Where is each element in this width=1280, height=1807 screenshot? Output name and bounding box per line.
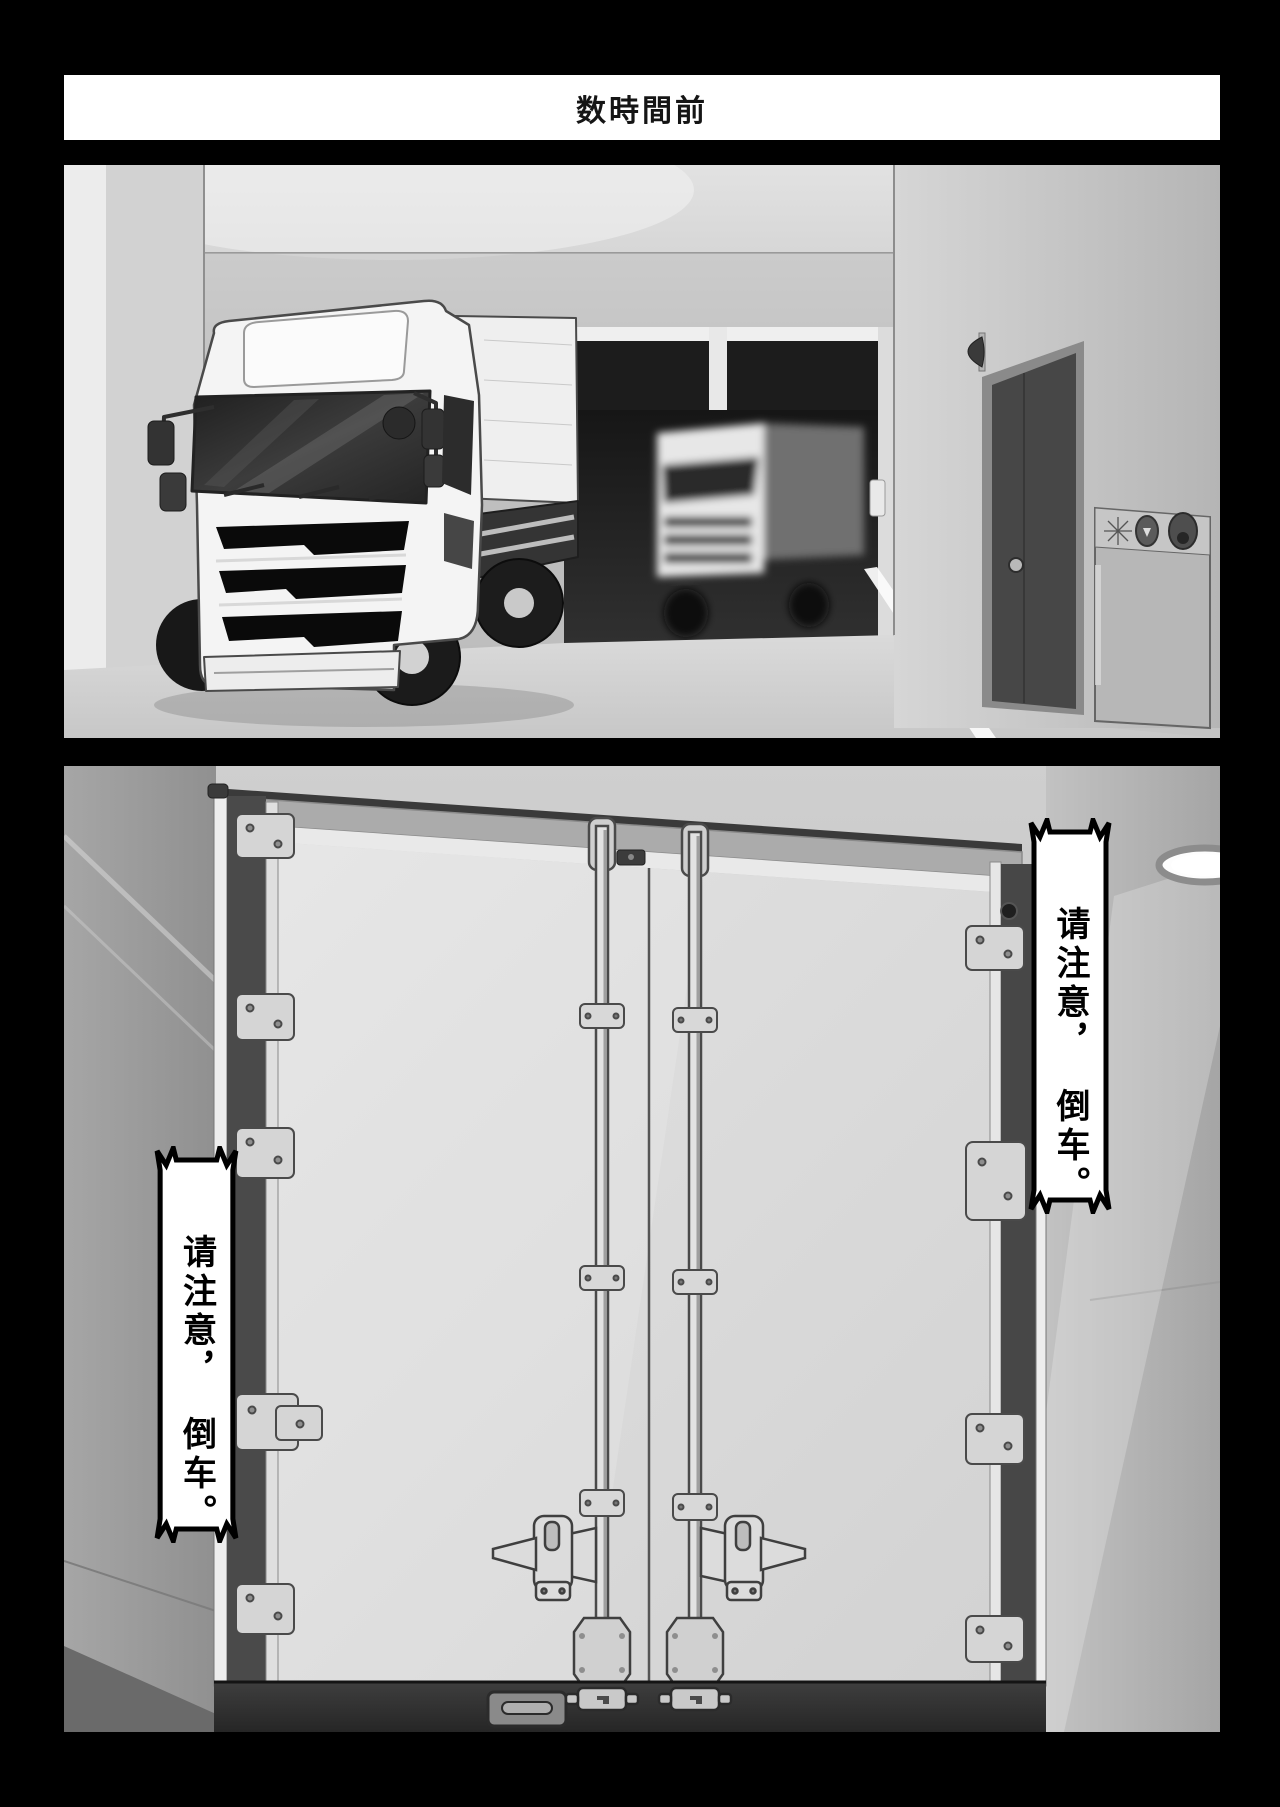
control-cabinet (1095, 508, 1210, 728)
garage-illustration (64, 165, 1220, 738)
garage-door-opening (564, 327, 894, 643)
panel-truck-rear-doors: 请注意，倒车。 请注意，倒车。 (64, 766, 1220, 1732)
speech-bubble-right: 请注意，倒车。 (1020, 818, 1120, 1214)
cargo-doors (208, 784, 1046, 1732)
panel-garage-scene (64, 165, 1220, 738)
speech-bubble-left: 请注意，倒车。 (146, 1146, 247, 1543)
comic-page: 数時間前 (0, 0, 1280, 1807)
door-knob (1009, 558, 1023, 572)
caption-text: 数時間前 (576, 86, 708, 130)
clearance-lamp-right (1001, 903, 1017, 919)
vent-grille (1104, 517, 1132, 545)
caption-banner: 数時間前 (64, 75, 1220, 140)
clearance-lamp-left (208, 784, 228, 798)
light-switch (870, 480, 885, 516)
speech-text-left: 请注意，倒车。 (180, 1234, 214, 1533)
rear-bumper (214, 1682, 1046, 1732)
side-window (442, 395, 474, 495)
wall-door (982, 341, 1084, 715)
speech-text-right: 请注意，倒车。 (1053, 906, 1087, 1205)
grille (216, 521, 409, 647)
